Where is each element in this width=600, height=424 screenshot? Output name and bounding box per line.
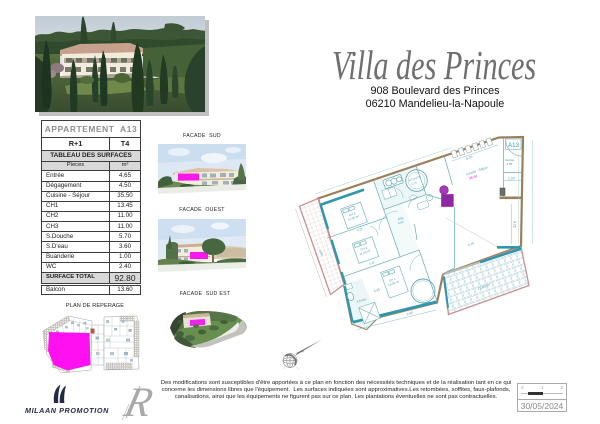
svg-text:4.05: 4.05 [513, 221, 517, 228]
svg-text:4.65: 4.65 [507, 162, 513, 166]
svg-text:1.20: 1.20 [508, 176, 515, 180]
svg-text:A13: A13 [508, 142, 520, 149]
svg-text:2.60: 2.60 [406, 310, 413, 316]
svg-text:MILAAN PROMOTION: MILAAN PROMOTION [25, 406, 109, 415]
svg-text:R: R [119, 380, 157, 424]
